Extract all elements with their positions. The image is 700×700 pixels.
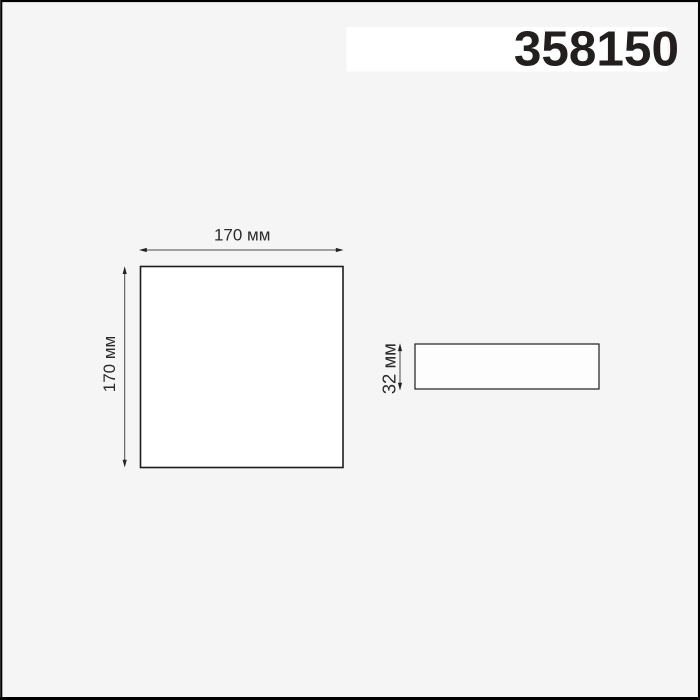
svg-text:358150: 358150	[514, 22, 679, 77]
svg-text:170 мм: 170 мм	[100, 336, 119, 392]
svg-text:170 мм: 170 мм	[214, 225, 270, 244]
svg-text:32 мм: 32 мм	[379, 343, 400, 394]
